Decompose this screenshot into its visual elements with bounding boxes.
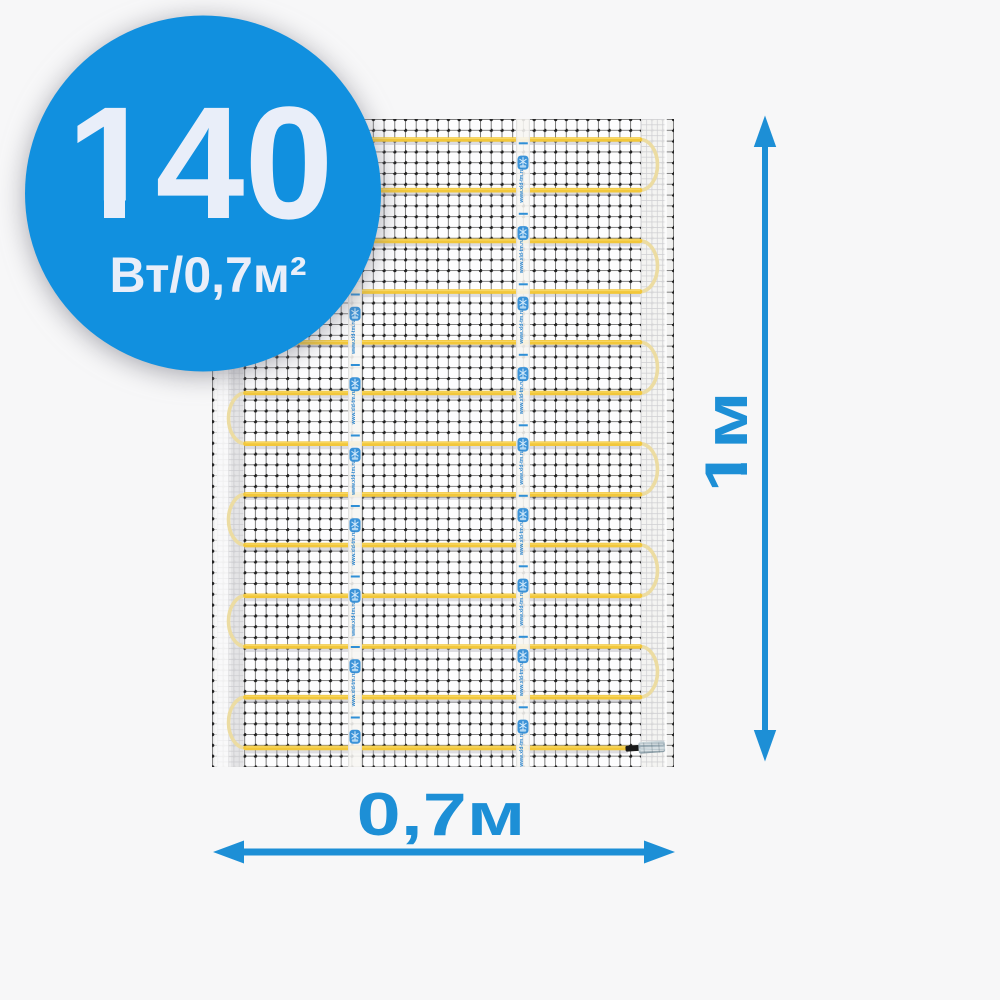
svg-text:www.xld-tm.ru: www.xld-tm.ru [519,168,525,203]
svg-text:www.xld-tm.ru: www.xld-tm.ru [351,320,357,355]
svg-text:www.xld-tm.ru: www.xld-tm.ru [351,461,357,496]
svg-text:140: 140 [67,73,334,252]
svg-text:www.xld-tm.ru: www.xld-tm.ru [519,591,525,626]
svg-text:www.xld-tm.ru: www.xld-tm.ru [351,672,357,707]
svg-text:1м: 1м [693,391,760,492]
svg-text:www.xld-tm.ru: www.xld-tm.ru [519,521,525,556]
svg-text:Вт/0,7м²: Вт/0,7м² [110,247,307,303]
svg-text:www.xld-tm.ru: www.xld-tm.ru [351,602,357,637]
svg-text:www.xld-tm.ru: www.xld-tm.ru [519,239,525,274]
svg-text:www.xld-tm.ru: www.xld-tm.ru [351,390,357,425]
svg-text:www.xld-tm.ru: www.xld-tm.ru [519,309,525,344]
svg-text:www.xld-tm.ru: www.xld-tm.ru [351,531,357,566]
svg-text:www.xld-tm.ru: www.xld-tm.ru [519,662,525,697]
svg-text:www.xld-tm.ru: www.xld-tm.ru [519,732,525,767]
svg-text:www.xld-tm.ru: www.xld-tm.ru [519,380,525,415]
svg-text:www.xld-tm.ru: www.xld-tm.ru [519,450,525,485]
svg-text:0,7м: 0,7м [357,780,526,847]
